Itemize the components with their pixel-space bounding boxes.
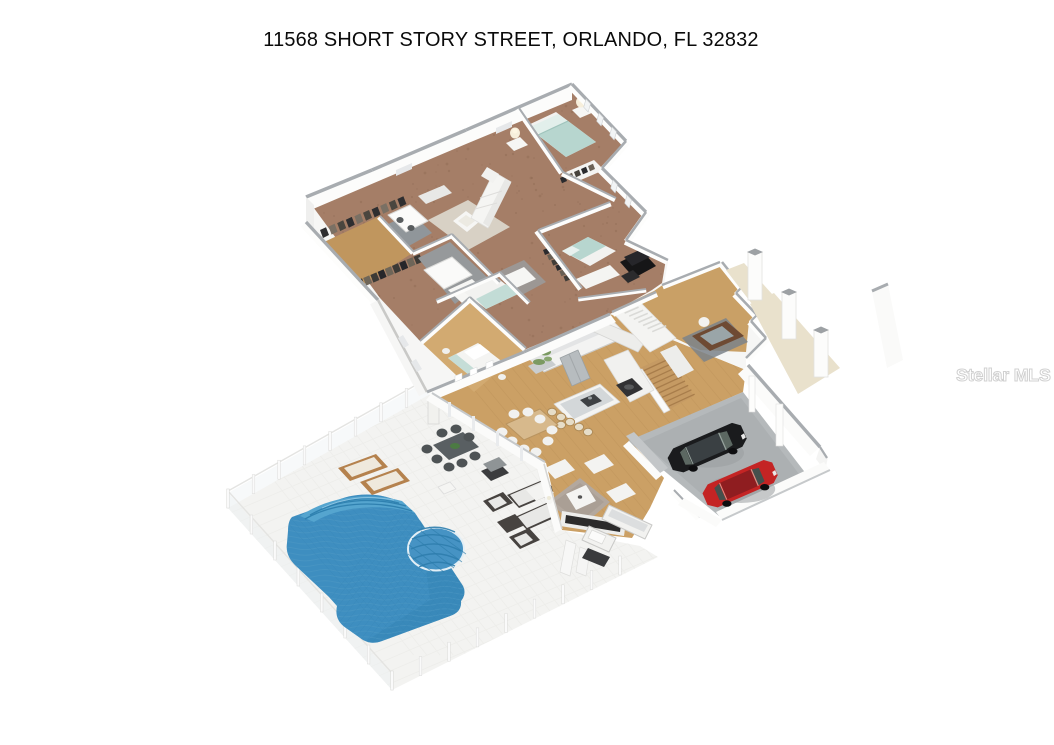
svg-text:Stellar MLS: Stellar MLS	[956, 365, 1051, 385]
svg-text:11568 SHORT STORY STREET, ORLA: 11568 SHORT STORY STREET, ORLANDO, FL 32…	[263, 29, 758, 51]
